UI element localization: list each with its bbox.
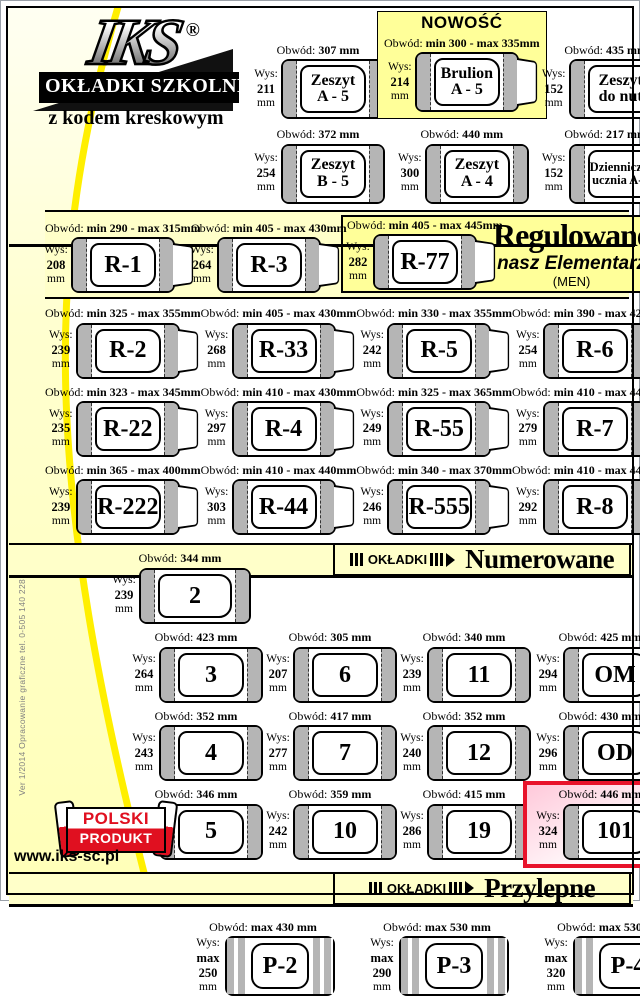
numerowane-grid: Obwód: 423 mm Wys: 264 mm 3 Obwód: 305 m… (129, 630, 629, 861)
obwod-label: Obwód: (423, 709, 462, 723)
brand-name: IKS (83, 13, 191, 72)
circumference-dimension: Obwód: 435 mm (539, 43, 640, 57)
version-side-note: Ver 1/2014 Opracowanie graficzne tel. 0-… (17, 579, 27, 796)
cover-right-band (475, 325, 489, 377)
wys-label: Wys: (360, 486, 384, 498)
wys-value: 268 (202, 343, 232, 358)
book-cover-graphic: 19 (427, 804, 531, 860)
book-cover-graphic: R-55 (387, 401, 491, 457)
cover-left-band (78, 481, 92, 533)
wys-unit: mm (401, 181, 419, 193)
banner-scroll: POLSKI PRODUKT (66, 807, 166, 853)
cover-left-band (389, 325, 403, 377)
cover-right-band (164, 481, 178, 533)
wys-label: Wys: (196, 937, 220, 949)
wys-unit: mm (208, 515, 226, 527)
cover-right-band (475, 403, 489, 455)
obwod-label: Obwód: (45, 385, 84, 399)
obwod-label: Obwód: (356, 385, 395, 399)
wys-label: Wys: (49, 408, 73, 420)
cover-label: R-55 (406, 407, 472, 451)
cover-left-band (571, 61, 585, 117)
wys-label: Wys: (370, 937, 394, 949)
obwod-value: 423 mm (196, 630, 237, 644)
book-cover-graphic: R-33 (232, 323, 336, 379)
wys-unit: mm (257, 97, 275, 109)
cover-left-band (429, 806, 443, 858)
product-card: Obwód: min 323 - max 345mm Wys: 235 mm R… (45, 385, 201, 457)
product-card: Obwód: 372 mm Wys: 254 mm Zeszyt B - 5 (251, 127, 385, 203)
obwod-value: min 405 - max 430mm (242, 306, 356, 320)
obwod-value: 359 mm (330, 787, 371, 801)
obwod-value: 430 mm (600, 709, 640, 723)
cover-left-band (565, 806, 579, 858)
wys-unit: mm (199, 981, 217, 993)
obwod-label: Obwód: (201, 306, 240, 320)
height-dimension: Wys: 239 mm (109, 574, 139, 617)
wys-value: 208 (41, 258, 71, 273)
product-card: Obwód: 415 mm Wys: 286 mm 19 (397, 787, 531, 861)
height-dimension: Wys: 296 mm (533, 732, 563, 775)
cover-right-band (461, 236, 475, 288)
obwod-label: Obwód: (423, 630, 462, 644)
wys-label: Wys: (516, 486, 540, 498)
obwod-label: Obwód: (512, 306, 551, 320)
obwod-value: min 405 - max 430mm (233, 221, 347, 235)
regulowane-grid: Obwód: min 325 - max 355mm Wys: 239 mm R… (45, 306, 629, 535)
website-url: www.iks-sc.pl (14, 848, 119, 866)
book-cover-graphic: R-555 (387, 479, 491, 535)
product-card: Obwód: 217 mm Wys: 152 mm Dzienniczek uc… (539, 127, 640, 203)
wys-value: max 250 (191, 951, 225, 981)
height-dimension: Wys: 324 mm (533, 810, 563, 853)
obwod-value: min 390 - max 420mm (554, 306, 640, 320)
cover-right-band (320, 403, 334, 455)
obwod-label: Obwód: (209, 920, 248, 934)
product-card: Obwód: 425 mm Wys: 294 mm OM (531, 630, 640, 702)
product-card: Obwód: max 430 mm Wys: max 250 mm P-2 (191, 920, 335, 996)
cover-left-band (545, 481, 559, 533)
section-title: Numerowane (465, 546, 614, 573)
obwod-value: 346 mm (196, 787, 237, 801)
circumference-dimension: Obwód: 423 mm (129, 630, 263, 644)
circumference-dimension: Obwód: 372 mm (251, 127, 385, 141)
wys-value: 282 (343, 255, 373, 270)
wys-unit: mm (47, 273, 65, 285)
obwod-value: min 325 - max 365mm (398, 385, 512, 399)
cover-right-band (247, 649, 261, 701)
wys-value: 300 (395, 166, 425, 181)
cover-left-band (565, 727, 579, 779)
product-card: Obwód: min 390 - max 420mm Wys: 254 mm R… (512, 306, 640, 378)
wys-label: Wys: (254, 152, 278, 164)
wys-label: Wys: (544, 937, 568, 949)
obwod-value: 425 mm (600, 630, 640, 644)
wys-value: 214 (385, 75, 415, 90)
circumference-dimension: Obwód: min 340 - max 370mm (356, 463, 512, 477)
product-card: Obwód: min 410 - max 445mm Wys: 279 mm R… (512, 385, 640, 457)
obwod-value: min 410 - max 445mm (554, 385, 640, 399)
obwod-value: min 290 - max 315mm (87, 221, 201, 235)
circumference-dimension: Obwód: max 430 mm (191, 920, 335, 934)
circumference-dimension: Obwód: 359 mm (263, 787, 397, 801)
wys-value: 264 (129, 667, 159, 682)
wys-unit: mm (257, 181, 275, 193)
book-cover-graphic: P-3 (399, 936, 509, 996)
iks-logo: IKS® OKŁADKI SZKOLNE z kodem kreskowym (27, 13, 245, 130)
cover-flap (178, 407, 198, 451)
cover-left-band (375, 236, 389, 288)
wys-unit: mm (403, 761, 421, 773)
height-dimension: Wys: 297 mm (202, 408, 232, 451)
obwod-value: min 325 - max 355mm (87, 306, 201, 320)
cover-label: OD (582, 731, 640, 775)
cover-label: Dzienniczek ucznia A- 6 (588, 150, 640, 198)
cover-right-band (164, 403, 178, 455)
wys-value: 286 (397, 824, 427, 839)
cover-flap (334, 485, 354, 529)
height-dimension: Wys: 300 mm (395, 152, 425, 195)
book-cover-graphic: OD (563, 725, 640, 781)
wys-unit: mm (135, 682, 153, 694)
cover-left-band (575, 938, 595, 994)
height-dimension: Wys: max 250 mm (191, 937, 225, 995)
barcode-bar-icon (369, 882, 372, 895)
wys-value: 239 (109, 588, 139, 603)
wys-label: Wys: (542, 152, 566, 164)
obwod-value: min 340 - max 370mm (398, 463, 512, 477)
polski-label: POLSKI (68, 809, 164, 829)
cover-label: 7 (312, 731, 378, 775)
product-card: Obwód: 352 mm Wys: 240 mm 12 (397, 709, 531, 781)
obwod-value: min 410 - max 430mm (242, 385, 356, 399)
wys-value: 294 (533, 667, 563, 682)
cover-label: R-22 (95, 407, 161, 451)
okladki-badge-label: OKŁADKI (368, 552, 427, 567)
circumference-dimension: Obwód: min 410 - max 445mm (512, 385, 640, 399)
circumference-dimension: Obwód: 344 mm (109, 551, 251, 565)
circumference-dimension: Obwód: min 290 - max 315mm (45, 221, 191, 235)
product-card: Obwód: min 410 - max 440mm Wys: 303 mm R… (201, 463, 357, 535)
wys-label: Wys: (360, 408, 384, 420)
wys-label: Wys: (516, 329, 540, 341)
book-cover-graphic: R-8 (543, 479, 640, 535)
wys-label: Wys: (132, 653, 156, 665)
obwod-label: Obwód: (45, 221, 84, 235)
cover-label: Zeszyt do nut (588, 65, 640, 113)
product-card: Obwód: 446 mm Wys: 324 mm 101 (523, 781, 640, 867)
obwod-value: min 410 - max 440mm (554, 463, 640, 477)
book-cover-graphic: Zeszyt B - 5 (281, 144, 385, 204)
circumference-dimension: Obwód: min 390 - max 420mm (512, 306, 640, 320)
wys-value: 279 (513, 421, 543, 436)
wys-unit: mm (208, 358, 226, 370)
height-dimension: Wys: 214 mm (385, 61, 415, 104)
product-card: Obwód: min 405 - max 430mm Wys: 264 mm R… (191, 221, 337, 293)
obwod-label: Obwód: (383, 920, 422, 934)
obwod-value: 217 mm (606, 127, 640, 141)
barcode-bar-icon (360, 553, 363, 566)
wys-unit: mm (519, 515, 537, 527)
wys-label: Wys: (360, 329, 384, 341)
logo-tagline: z kodem kreskowym (27, 107, 245, 130)
cover-right-band (513, 146, 527, 202)
circumference-dimension: Obwód: min 325 - max 365mm (356, 385, 512, 399)
obwod-value: 417 mm (330, 709, 371, 723)
cover-label: R-2 (95, 329, 161, 373)
wys-label: Wys: (400, 810, 424, 822)
obwod-label: Obwód: (564, 127, 603, 141)
wys-label: Wys: (49, 486, 73, 498)
cover-left-band (389, 481, 403, 533)
cover-label: 5 (178, 810, 244, 854)
book-cover-graphic: 6 (293, 647, 397, 703)
book-cover-graphic: 3 (159, 647, 263, 703)
wys-unit: mm (349, 270, 367, 282)
barcode-bar-icon (440, 553, 443, 566)
section-title: Regulowane (493, 219, 640, 251)
cover-flap (489, 485, 509, 529)
wys-label: Wys: (536, 810, 560, 822)
wys-value: 242 (357, 343, 387, 358)
wys-label: Wys: (205, 329, 229, 341)
cover-left-band (295, 806, 309, 858)
obwod-value: min 330 - max 355mm (398, 306, 512, 320)
height-dimension: Wys: 152 mm (539, 68, 569, 111)
wys-value: 297 (202, 421, 232, 436)
barcode-bar-icon (374, 882, 377, 895)
product-card: Obwód: min 325 - max 355mm Wys: 239 mm R… (45, 306, 201, 378)
book-cover-graphic: 7 (293, 725, 397, 781)
obwod-label: Obwód: (45, 306, 84, 320)
cover-right-band (475, 481, 489, 533)
cover-right-band (381, 806, 395, 858)
cover-left-band (571, 146, 585, 202)
section-title: Przylepne (484, 875, 595, 902)
circumference-dimension: Obwód: min 405 - max 445mm (347, 218, 493, 232)
cover-left-band (417, 54, 431, 110)
obwod-label: Obwód: (356, 463, 395, 477)
arrow-right-icon (465, 881, 474, 895)
product-card: Obwód: min 330 - max 355mm Wys: 242 mm R… (356, 306, 512, 378)
obwod-label: Obwód: (191, 221, 230, 235)
cover-label: P-2 (251, 943, 309, 989)
wys-unit: mm (52, 515, 70, 527)
obwod-label: Obwód: (139, 551, 178, 565)
cover-left-band (389, 403, 403, 455)
cover-right-band (320, 325, 334, 377)
obwod-value: 307 mm (318, 43, 359, 57)
wys-value: 239 (397, 667, 427, 682)
product-card: Obwód: min 365 - max 400mm Wys: 239 mm R… (45, 463, 201, 535)
cover-label: 11 (446, 653, 512, 697)
obwod-label: Obwód: (384, 36, 423, 50)
obwod-label: Obwód: (512, 385, 551, 399)
wys-value: 235 (46, 421, 76, 436)
circumference-dimension: Obwód: min 325 - max 355mm (45, 306, 201, 320)
cover-label: R-7 (562, 407, 628, 451)
wys-label: Wys: (346, 241, 370, 253)
cover-label: R-1 (90, 243, 156, 287)
obwod-value: min 365 - max 400mm (87, 463, 201, 477)
cover-label: R-44 (251, 485, 317, 529)
cover-label: Brulion A - 5 (434, 58, 500, 106)
height-dimension: Wys: 246 mm (357, 486, 387, 529)
obwod-label: Obwód: (201, 463, 240, 477)
product-card: Obwód: min 405 - max 430mm Wys: 268 mm R… (201, 306, 357, 378)
circumference-dimension: Obwód: min 365 - max 400mm (45, 463, 201, 477)
obwod-label: Obwód: (512, 463, 551, 477)
cover-label: R-4 (251, 407, 317, 451)
barcode-bar-icon (350, 553, 353, 566)
wys-unit: mm (539, 839, 557, 851)
obwod-value: 305 mm (330, 630, 371, 644)
wys-label: Wys: (398, 152, 422, 164)
wys-label: Wys: (254, 68, 278, 80)
cover-right-band (515, 649, 529, 701)
cover-right-band (503, 54, 517, 110)
cover-label: R-5 (406, 329, 472, 373)
cover-right-band (313, 938, 333, 994)
cover-left-band (427, 146, 441, 202)
obwod-label: Obwód: (559, 709, 598, 723)
wys-value: 239 (46, 500, 76, 515)
height-dimension: Wys: 282 mm (343, 241, 373, 284)
book-cover-graphic: P-4 (573, 936, 640, 996)
cover-right-band (164, 325, 178, 377)
obwod-value: 446 mm (600, 787, 640, 801)
obwod-label: Obwód: (155, 630, 194, 644)
new-badge: NOWOŚĆ (384, 12, 540, 36)
cover-left-band (78, 325, 92, 377)
cover-left-band (401, 938, 421, 994)
cover-flap (475, 240, 495, 284)
obwod-value: 435 mm (606, 43, 640, 57)
product-card: Obwód: 440 mm Wys: 300 mm Zeszyt A - 4 (385, 127, 539, 203)
height-dimension: Wys: 242 mm (357, 329, 387, 372)
wys-value: 152 (539, 82, 569, 97)
obwod-value: 340 mm (464, 630, 505, 644)
book-cover-graphic: Brulion A - 5 (415, 52, 519, 112)
obwod-value: 415 mm (464, 787, 505, 801)
cover-label: P-4 (599, 943, 640, 989)
wys-value: 152 (539, 166, 569, 181)
circumference-dimension: Obwód: max 530 mm (539, 920, 640, 934)
wys-value: 254 (513, 343, 543, 358)
wys-unit: mm (547, 981, 565, 993)
numerowane-first-entry: Obwód: 344 mm Wys: 239 mm 2 (109, 551, 251, 623)
book-cover-graphic: R-222 (76, 479, 180, 535)
numerowane-header: OKŁADKI Numerowane Obwód: 344 mm Wys: 23… (45, 543, 629, 623)
cover-flap (489, 407, 509, 451)
wys-unit: mm (391, 90, 409, 102)
wys-value: 303 (202, 500, 232, 515)
height-dimension: Wys: 294 mm (533, 653, 563, 696)
book-cover-graphic: Zeszyt A - 4 (425, 144, 529, 204)
obwod-label: Obwód: (289, 630, 328, 644)
product-card: Obwód: 344 mm Wys: 239 mm 2 (109, 551, 251, 623)
cover-label: 10 (312, 810, 378, 854)
height-dimension: Wys: 292 mm (513, 486, 543, 529)
height-dimension: Wys: 249 mm (357, 408, 387, 451)
book-cover-graphic: R-44 (232, 479, 336, 535)
obwod-value: 372 mm (318, 127, 359, 141)
wys-value: 264 (187, 258, 217, 273)
product-card: Obwód: 417 mm Wys: 277 mm 7 (263, 709, 397, 781)
circumference-dimension: Obwód: 446 mm (533, 787, 640, 801)
obwod-label: Obwód: (557, 920, 596, 934)
book-cover-graphic: Zeszyt A - 5 (281, 59, 385, 119)
height-dimension: Wys: 239 mm (397, 653, 427, 696)
cover-flap (334, 329, 354, 373)
book-cover-graphic: R-2 (76, 323, 180, 379)
barcode-bar-icon (379, 882, 382, 895)
circumference-dimension: Obwód: 425 mm (531, 630, 640, 644)
wys-label: Wys: (49, 329, 73, 341)
okladki-badge: OKŁADKI (350, 552, 455, 567)
book-cover-graphic: R-6 (543, 323, 640, 379)
cover-right-band (305, 239, 319, 291)
book-cover-graphic: R-5 (387, 323, 491, 379)
barcode-bar-icon (449, 882, 452, 895)
wys-unit: mm (545, 181, 563, 193)
obwod-label: Obwód: (45, 463, 84, 477)
product-card: Obwód: min 325 - max 365mm Wys: 249 mm R… (356, 385, 512, 457)
wys-value: max 320 (539, 951, 573, 981)
cover-left-band (545, 325, 559, 377)
wys-unit: mm (52, 358, 70, 370)
section-subtitle: nasz Elementarz (493, 254, 640, 273)
cover-right-band (631, 325, 640, 377)
cover-label: Zeszyt A - 4 (444, 150, 510, 198)
wys-unit: mm (269, 682, 287, 694)
wys-value: 240 (397, 746, 427, 761)
cover-left-band (227, 938, 247, 994)
cover-label: 2 (158, 574, 232, 618)
cover-left-band (219, 239, 233, 291)
cover-right-band (631, 481, 640, 533)
cover-label: R-222 (95, 485, 161, 529)
cover-left-band (141, 570, 155, 622)
przylepne-title-box: OKŁADKI Przylepne (333, 872, 631, 905)
obwod-label: Obwód: (277, 127, 316, 141)
wys-unit: mm (403, 682, 421, 694)
cover-left-band (161, 727, 175, 779)
book-cover-graphic: R-4 (232, 401, 336, 457)
cover-right-band (247, 806, 261, 858)
cover-flap (517, 58, 537, 106)
wys-unit: mm (403, 839, 421, 851)
obwod-value: max 430 mm (251, 920, 317, 934)
circumference-dimension: Obwód: min 405 - max 430mm (201, 306, 357, 320)
obwod-label: Obwód: (289, 787, 328, 801)
cover-left-band (295, 649, 309, 701)
obwod-value: 344 mm (180, 551, 221, 565)
cover-label: 6 (312, 653, 378, 697)
circumference-dimension: Obwód: min 410 - max 440mm (512, 463, 640, 477)
cover-label: R-3 (236, 243, 302, 287)
height-dimension: Wys: 239 mm (46, 329, 76, 372)
product-card: Obwód: min 405 - max 445mm Wys: 282 mm R… (347, 218, 493, 290)
wys-label: Wys: (400, 653, 424, 665)
wys-unit: mm (363, 515, 381, 527)
circumference-dimension: Obwód: 430 mm (531, 709, 640, 723)
book-cover-graphic: 101 (563, 804, 640, 860)
obwod-label: Obwód: (421, 127, 460, 141)
wys-value: 207 (263, 667, 293, 682)
obwod-label: Obwód: (423, 787, 462, 801)
circumference-dimension: Obwód: 440 mm (385, 127, 539, 141)
